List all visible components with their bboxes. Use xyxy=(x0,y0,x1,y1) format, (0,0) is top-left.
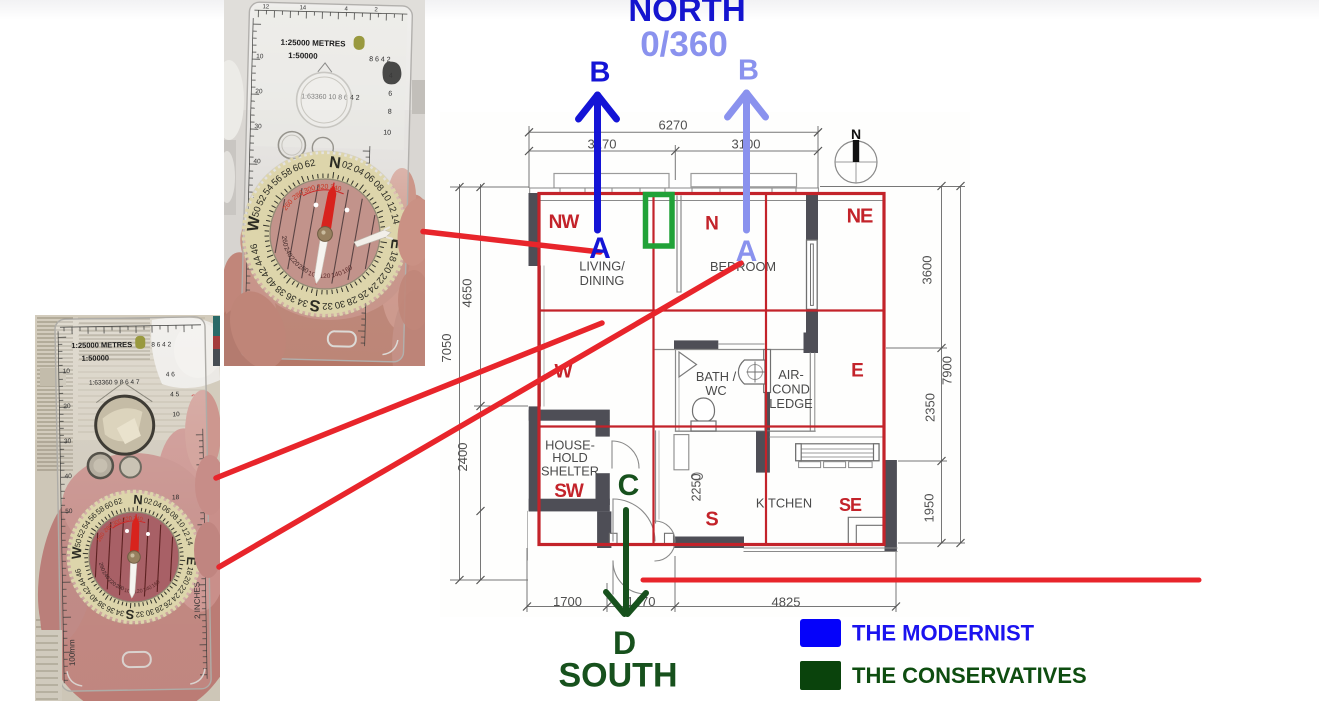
svg-text:18: 18 xyxy=(172,494,180,501)
svg-text:100mm: 100mm xyxy=(67,639,76,666)
svg-text:3170: 3170 xyxy=(588,137,617,152)
svg-text:4825: 4825 xyxy=(772,595,801,610)
svg-text:SW: SW xyxy=(554,481,584,502)
svg-text:6270: 6270 xyxy=(659,118,688,133)
svg-text:30: 30 xyxy=(334,297,347,310)
svg-text:10: 10 xyxy=(256,53,264,60)
svg-text:S: S xyxy=(705,509,718,531)
svg-text:SHELTER: SHELTER xyxy=(541,464,599,479)
svg-text:C: C xyxy=(618,469,640,502)
svg-text:COND: COND xyxy=(772,382,810,397)
svg-text:A: A xyxy=(736,235,758,268)
svg-text:12: 12 xyxy=(262,4,269,10)
svg-text:BATH /: BATH / xyxy=(696,369,737,384)
svg-text:30: 30 xyxy=(254,123,262,130)
svg-text:2250: 2250 xyxy=(690,474,704,502)
svg-text:4 6: 4 6 xyxy=(166,371,176,378)
svg-text:14: 14 xyxy=(299,5,306,11)
svg-text:SE: SE xyxy=(839,495,862,515)
svg-text:40: 40 xyxy=(65,473,73,480)
svg-text:46: 46 xyxy=(249,243,262,256)
svg-text:N: N xyxy=(851,126,861,142)
svg-text:1:63360 9 8 6 4 7: 1:63360 9 8 6 4 7 xyxy=(89,379,140,387)
svg-text:N: N xyxy=(133,492,143,508)
svg-text:NE: NE xyxy=(847,206,873,228)
svg-text:1700: 1700 xyxy=(553,594,582,609)
svg-text:0/360: 0/360 xyxy=(640,25,728,64)
svg-text:E: E xyxy=(851,361,864,382)
svg-text:32: 32 xyxy=(322,300,333,311)
svg-text:NW: NW xyxy=(549,212,580,233)
svg-text:30: 30 xyxy=(64,438,72,445)
svg-text:NORTH: NORTH xyxy=(628,0,745,28)
svg-text:LEDGE: LEDGE xyxy=(769,396,812,411)
svg-text:SOUTH: SOUTH xyxy=(559,657,678,695)
svg-text:2400: 2400 xyxy=(455,443,470,472)
svg-text:32: 32 xyxy=(135,609,145,619)
svg-text:N: N xyxy=(328,154,342,172)
svg-text:8 6 4 2: 8 6 4 2 xyxy=(151,341,171,348)
svg-text:8: 8 xyxy=(388,109,392,116)
svg-text:AIR-: AIR- xyxy=(778,367,804,382)
svg-text:40: 40 xyxy=(253,158,261,165)
svg-text:1:25000 METRES: 1:25000 METRES xyxy=(280,38,346,49)
svg-text:6: 6 xyxy=(388,91,392,98)
svg-text:KITCHEN: KITCHEN xyxy=(756,496,812,511)
svg-text:3600: 3600 xyxy=(920,256,935,285)
svg-text:2 INCHES: 2 INCHES xyxy=(335,543,345,580)
svg-text:WC: WC xyxy=(705,383,726,398)
svg-text:DINING: DINING xyxy=(580,273,625,288)
svg-text:4 5: 4 5 xyxy=(170,391,180,398)
svg-text:B: B xyxy=(738,55,759,87)
svg-text:THE CONSERVATIVES: THE CONSERVATIVES xyxy=(852,663,1087,688)
svg-text:B: B xyxy=(590,57,611,89)
svg-text:S: S xyxy=(125,607,135,623)
svg-text:7900: 7900 xyxy=(940,356,955,385)
svg-text:7050: 7050 xyxy=(439,334,454,363)
svg-text:1:25000 METRES: 1:25000 METRES xyxy=(71,340,132,350)
svg-text:10: 10 xyxy=(383,130,391,137)
svg-text:1950: 1950 xyxy=(922,494,937,523)
svg-text:50: 50 xyxy=(65,508,73,515)
svg-text:1:50000: 1:50000 xyxy=(81,353,109,362)
svg-text:2350: 2350 xyxy=(923,393,938,422)
svg-text:10: 10 xyxy=(63,368,71,375)
svg-text:N: N xyxy=(705,214,719,235)
svg-text:A: A xyxy=(589,232,611,265)
svg-text:20: 20 xyxy=(63,403,71,410)
svg-text:10: 10 xyxy=(172,411,180,418)
svg-text:62: 62 xyxy=(304,158,317,171)
svg-text:THE MODERNIST: THE MODERNIST xyxy=(852,621,1035,646)
svg-text:320: 320 xyxy=(317,184,329,192)
svg-text:4650: 4650 xyxy=(460,279,475,308)
svg-text:100mm: 100mm xyxy=(244,581,254,608)
svg-text:1:50000: 1:50000 xyxy=(288,51,318,61)
svg-text:20: 20 xyxy=(255,88,263,95)
